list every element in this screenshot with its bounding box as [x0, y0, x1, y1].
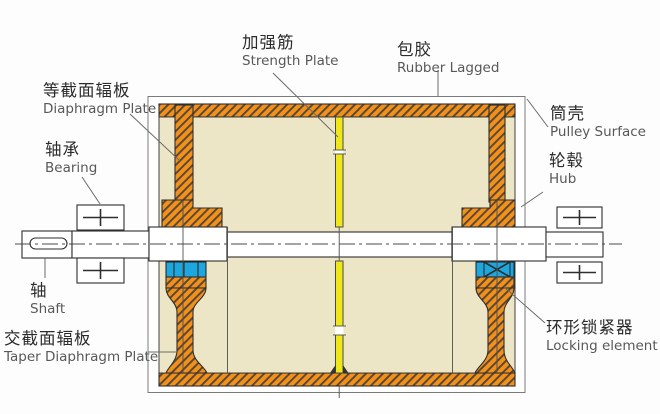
leader-pulley-surface — [527, 99, 548, 127]
locking-element-right — [476, 262, 514, 277]
label-locking-element: 环形锁紧器 Locking element — [546, 317, 658, 355]
label-rubber-lagged: 包胶 Rubber Lagged — [397, 39, 499, 77]
label-hub-zh: 轮毂 — [549, 150, 584, 171]
diaphragm-plate-right — [489, 105, 505, 202]
label-strength-plate-en: Strength Plate — [242, 53, 338, 70]
label-diaphragm-plate-en: Diaphragm Plate — [43, 101, 156, 118]
label-bearing: 轴承 Bearing — [45, 139, 97, 177]
label-rubber-lagged-zh: 包胶 — [397, 39, 499, 60]
strength-plate-break-lower — [335, 326, 344, 335]
label-locking-element-en: Locking element — [546, 338, 658, 355]
label-diaphragm-plate-zh: 等截面辐板 — [43, 80, 156, 101]
label-shaft: 轴 Shaft — [30, 280, 65, 318]
label-locking-element-zh: 环形锁紧器 — [546, 317, 658, 338]
label-shaft-en: Shaft — [30, 301, 65, 318]
conveyor-pulley-diagram: 加强筋 Strength Plate 包胶 Rubber Lagged 等截面辐… — [0, 0, 660, 414]
label-strength-plate: 加强筋 Strength Plate — [242, 32, 338, 70]
label-rubber-lagged-en: Rubber Lagged — [397, 60, 499, 77]
label-taper-diaphragm-plate: 交截面辐板 Taper Diaphragm Plate — [4, 328, 158, 366]
diaphragm-plate-left — [175, 105, 193, 202]
strength-plate-upper — [336, 117, 344, 227]
shell-bottom — [159, 373, 515, 386]
label-bearing-zh: 轴承 — [45, 139, 97, 160]
label-hub-en: Hub — [549, 171, 584, 188]
label-bearing-en: Bearing — [45, 160, 97, 177]
hub-bottom-left — [166, 277, 206, 288]
strength-plate-lower — [336, 261, 344, 373]
label-shaft-zh: 轴 — [30, 280, 65, 301]
label-hub: 轮毂 Hub — [549, 150, 584, 188]
label-strength-plate-zh: 加强筋 — [242, 32, 338, 53]
hub-bottom-right — [476, 277, 514, 288]
label-pulley-surface-zh: 筒壳 — [550, 103, 646, 124]
label-taper-diaphragm-plate-zh: 交截面辐板 — [4, 328, 158, 349]
strength-plate-break-upper — [335, 150, 344, 154]
leader-bearing — [82, 177, 100, 204]
label-pulley-surface: 筒壳 Pulley Surface — [550, 103, 646, 141]
shell-top — [159, 104, 515, 117]
locking-element-left — [166, 262, 206, 277]
label-taper-diaphragm-plate-en: Taper Diaphragm Plate — [4, 349, 158, 366]
label-pulley-surface-en: Pulley Surface — [550, 124, 646, 141]
label-diaphragm-plate: 等截面辐板 Diaphragm Plate — [43, 80, 156, 118]
